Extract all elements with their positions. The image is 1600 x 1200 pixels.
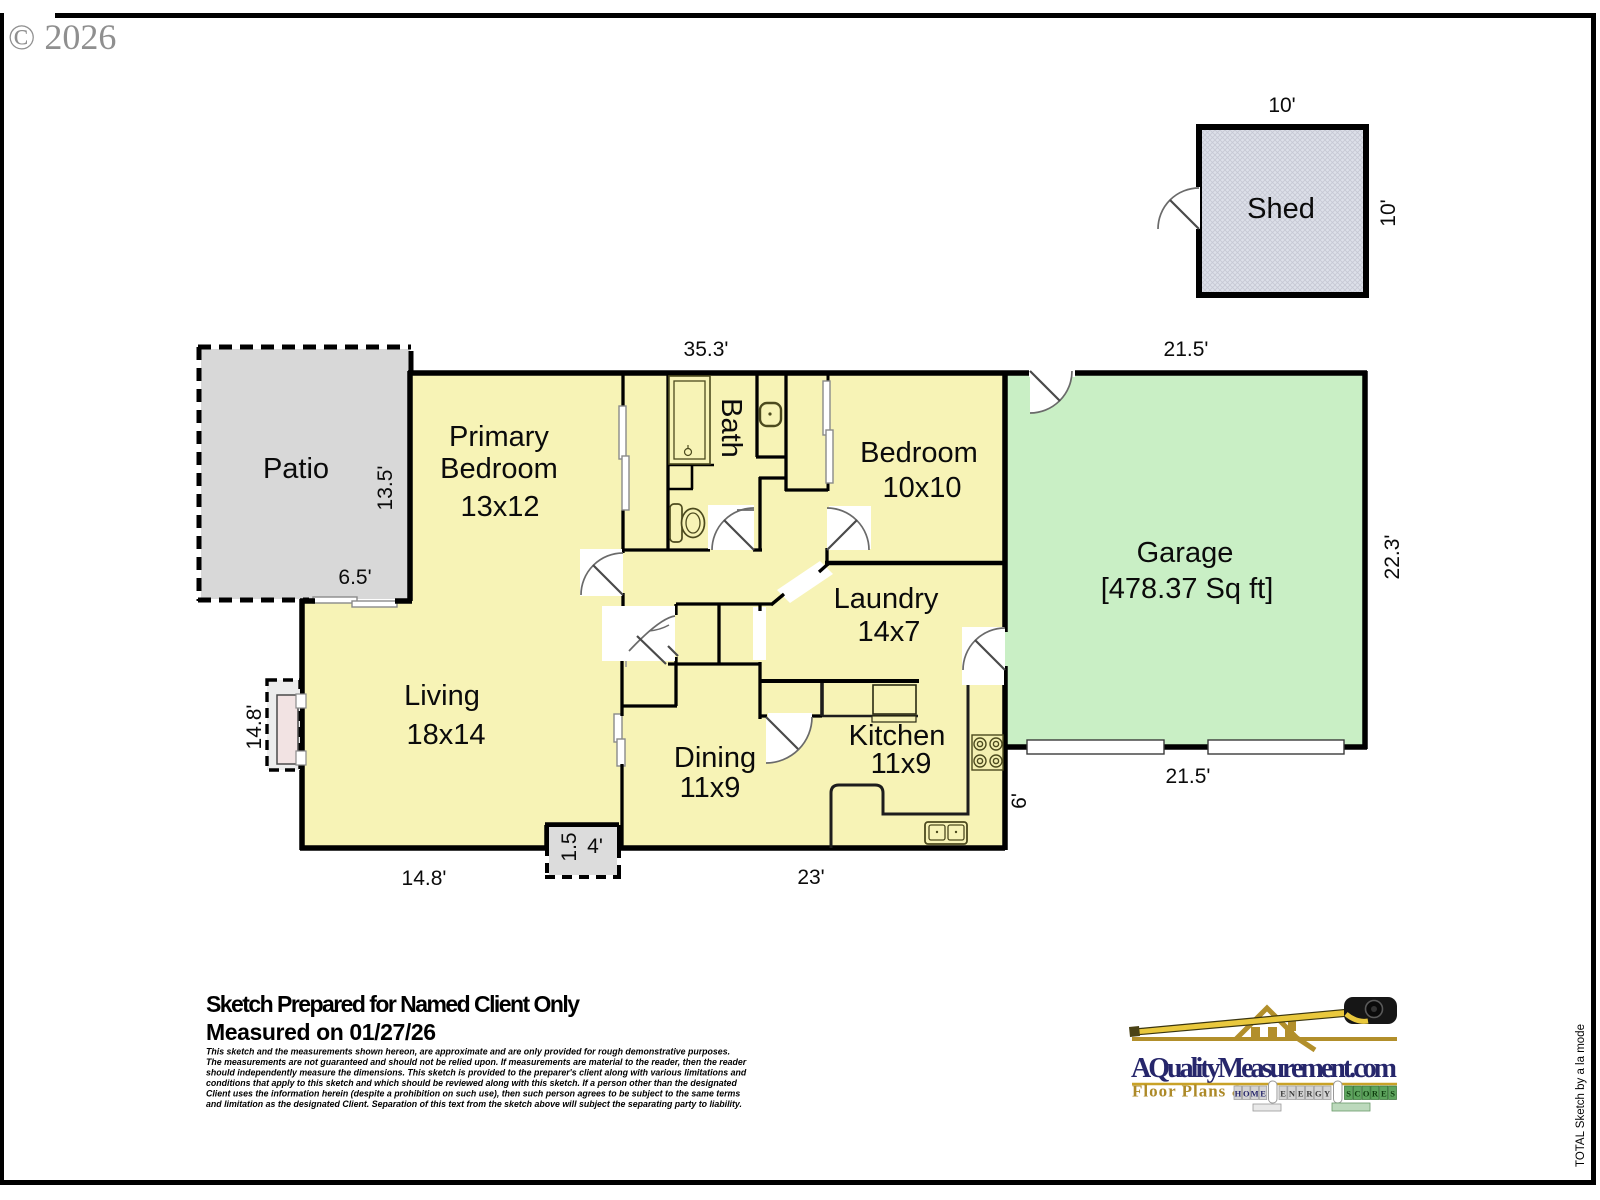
svg-text:E: E	[1381, 1089, 1387, 1099]
svg-text:R: R	[1306, 1089, 1313, 1099]
svg-text:21.5': 21.5'	[1164, 338, 1209, 361]
svg-text:18x14: 18x14	[406, 719, 485, 751]
svg-text:6.5': 6.5'	[338, 566, 371, 589]
svg-text:E: E	[1260, 1089, 1266, 1099]
svg-text:AQualityMeasurement.com: AQualityMeasurement.com	[1131, 1053, 1397, 1084]
svg-text:Bedroom: Bedroom	[860, 437, 978, 469]
svg-text:1.5: 1.5	[558, 832, 581, 861]
svg-text:© 2026: © 2026	[8, 17, 116, 57]
svg-text:C: C	[1354, 1089, 1360, 1099]
svg-text:O: O	[1243, 1089, 1250, 1099]
svg-text:13.5': 13.5'	[374, 466, 397, 511]
svg-text:E: E	[1298, 1089, 1304, 1099]
svg-text:G: G	[1315, 1089, 1322, 1099]
svg-text:S: S	[1390, 1089, 1395, 1099]
svg-text:23': 23'	[797, 866, 824, 889]
svg-text:11x9: 11x9	[680, 772, 741, 804]
svg-text:Bedroom: Bedroom	[440, 453, 558, 485]
svg-text:TOTAL Sketch by a la mode: TOTAL Sketch by a la mode	[1575, 1024, 1587, 1167]
svg-text:[478.37 Sq ft]: [478.37 Sq ft]	[1101, 573, 1274, 605]
svg-text:Y: Y	[1324, 1089, 1330, 1099]
svg-text:35.3': 35.3'	[684, 338, 729, 361]
svg-text:Garage: Garage	[1137, 537, 1234, 569]
svg-text:Patio: Patio	[263, 453, 329, 485]
svg-text:N: N	[1289, 1089, 1296, 1099]
svg-text:14.8': 14.8'	[402, 867, 447, 890]
svg-text:The measurements are not guara: The measurements are not guaranteed and …	[206, 1057, 747, 1067]
svg-text:11x9: 11x9	[871, 748, 932, 780]
svg-text:Dining: Dining	[674, 742, 756, 774]
svg-text:10': 10'	[1268, 94, 1295, 117]
svg-text:6': 6'	[1008, 793, 1031, 809]
svg-text:10x10: 10x10	[882, 472, 961, 504]
svg-text:14x7: 14x7	[858, 616, 921, 648]
svg-text:R: R	[1372, 1089, 1379, 1099]
svg-text:13x12: 13x12	[460, 491, 539, 523]
svg-text:E: E	[1280, 1089, 1286, 1099]
svg-text:M: M	[1251, 1089, 1259, 1099]
svg-text:This sketch and the measuremen: This sketch and the measurements shown h…	[206, 1047, 730, 1057]
svg-text:14.8': 14.8'	[243, 705, 266, 750]
svg-text:Shed: Shed	[1247, 193, 1315, 225]
svg-text:should independently measure t: should independently measure the dimensi…	[206, 1068, 747, 1078]
svg-text:4': 4'	[587, 835, 603, 858]
svg-text:conditions that apply to this: conditions that apply to this sketch and…	[206, 1078, 737, 1088]
svg-text:Client uses the information he: Client uses the information herein (desp…	[206, 1089, 740, 1099]
svg-text:21.5': 21.5'	[1166, 765, 1211, 788]
svg-text:S: S	[1346, 1089, 1351, 1099]
svg-text:Primary: Primary	[449, 421, 549, 453]
svg-text:10': 10'	[1377, 199, 1400, 226]
svg-text:H: H	[1235, 1089, 1242, 1099]
svg-text:22.3': 22.3'	[1381, 535, 1404, 580]
svg-text:Floor Plans &: Floor Plans &	[1132, 1082, 1247, 1101]
svg-text:Laundry: Laundry	[834, 583, 939, 615]
svg-text:Sketch Prepared for Named Clie: Sketch Prepared for Named Client Only	[206, 991, 580, 1017]
svg-text:and limitation as the designat: and limitation as the designated Client.…	[206, 1099, 742, 1109]
svg-text:Bath: Bath	[715, 398, 747, 458]
svg-text:Measured on 01/27/26: Measured on 01/27/26	[206, 1019, 436, 1045]
svg-text:Living: Living	[404, 680, 480, 712]
svg-text:O: O	[1363, 1089, 1370, 1099]
